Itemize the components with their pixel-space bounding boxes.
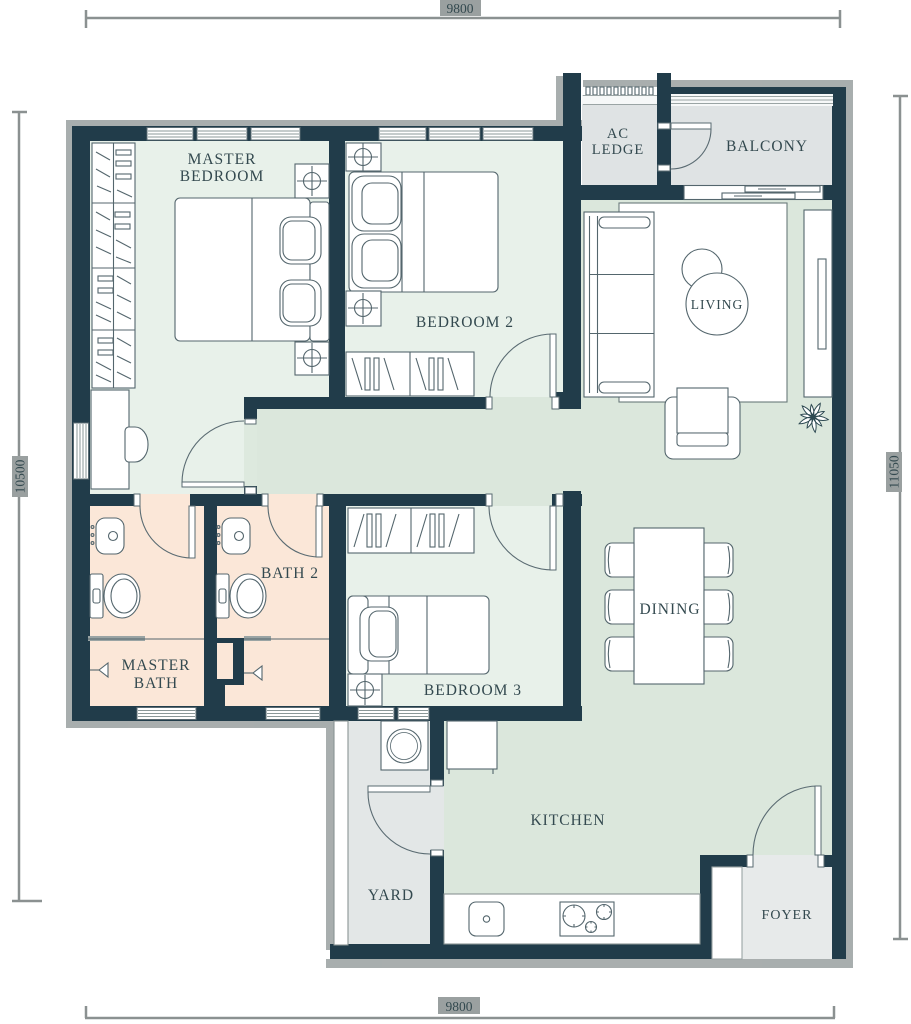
svg-text:MASTER: MASTER bbox=[188, 151, 257, 168]
svg-text:BEDROOM 3: BEDROOM 3 bbox=[424, 682, 522, 699]
svg-text:BATH: BATH bbox=[134, 675, 178, 692]
svg-text:11050: 11050 bbox=[887, 455, 902, 488]
svg-text:9800: 9800 bbox=[447, 1, 474, 16]
svg-text:BEDROOM 2: BEDROOM 2 bbox=[416, 314, 514, 331]
svg-text:9800: 9800 bbox=[446, 999, 473, 1014]
svg-text:AC: AC bbox=[607, 126, 629, 142]
svg-text:FOYER: FOYER bbox=[762, 908, 813, 923]
svg-text:10500: 10500 bbox=[13, 459, 28, 493]
svg-text:BALCONY: BALCONY bbox=[726, 138, 808, 155]
svg-text:BEDROOM: BEDROOM bbox=[180, 168, 265, 185]
svg-text:DINING: DINING bbox=[639, 601, 700, 618]
svg-text:KITCHEN: KITCHEN bbox=[530, 812, 605, 829]
svg-text:YARD: YARD bbox=[368, 887, 414, 904]
svg-text:MASTER: MASTER bbox=[122, 657, 191, 674]
svg-text:LIVING: LIVING bbox=[691, 297, 744, 312]
svg-text:LEDGE: LEDGE bbox=[592, 142, 645, 158]
svg-text:BATH 2: BATH 2 bbox=[261, 565, 319, 582]
